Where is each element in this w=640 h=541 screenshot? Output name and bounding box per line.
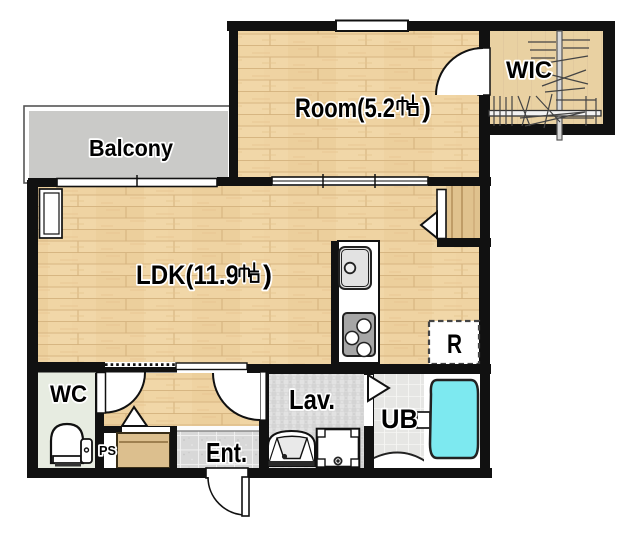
svg-text:): ) [263,260,272,290]
svg-text:Ent.: Ent. [206,437,247,468]
svg-text:): ) [422,93,431,123]
svg-text:UB: UB [381,404,418,434]
svg-text:LDK(11.9: LDK(11.9 [136,260,239,290]
svg-text:Room(5.2: Room(5.2 [295,93,395,123]
svg-text:WC: WC [50,381,87,408]
svg-text:Balcony: Balcony [89,135,173,161]
svg-text:WIC: WIC [506,57,552,84]
svg-text:Lav.: Lav. [289,384,335,415]
svg-text:R: R [447,329,462,359]
svg-text:PS: PS [99,444,116,458]
